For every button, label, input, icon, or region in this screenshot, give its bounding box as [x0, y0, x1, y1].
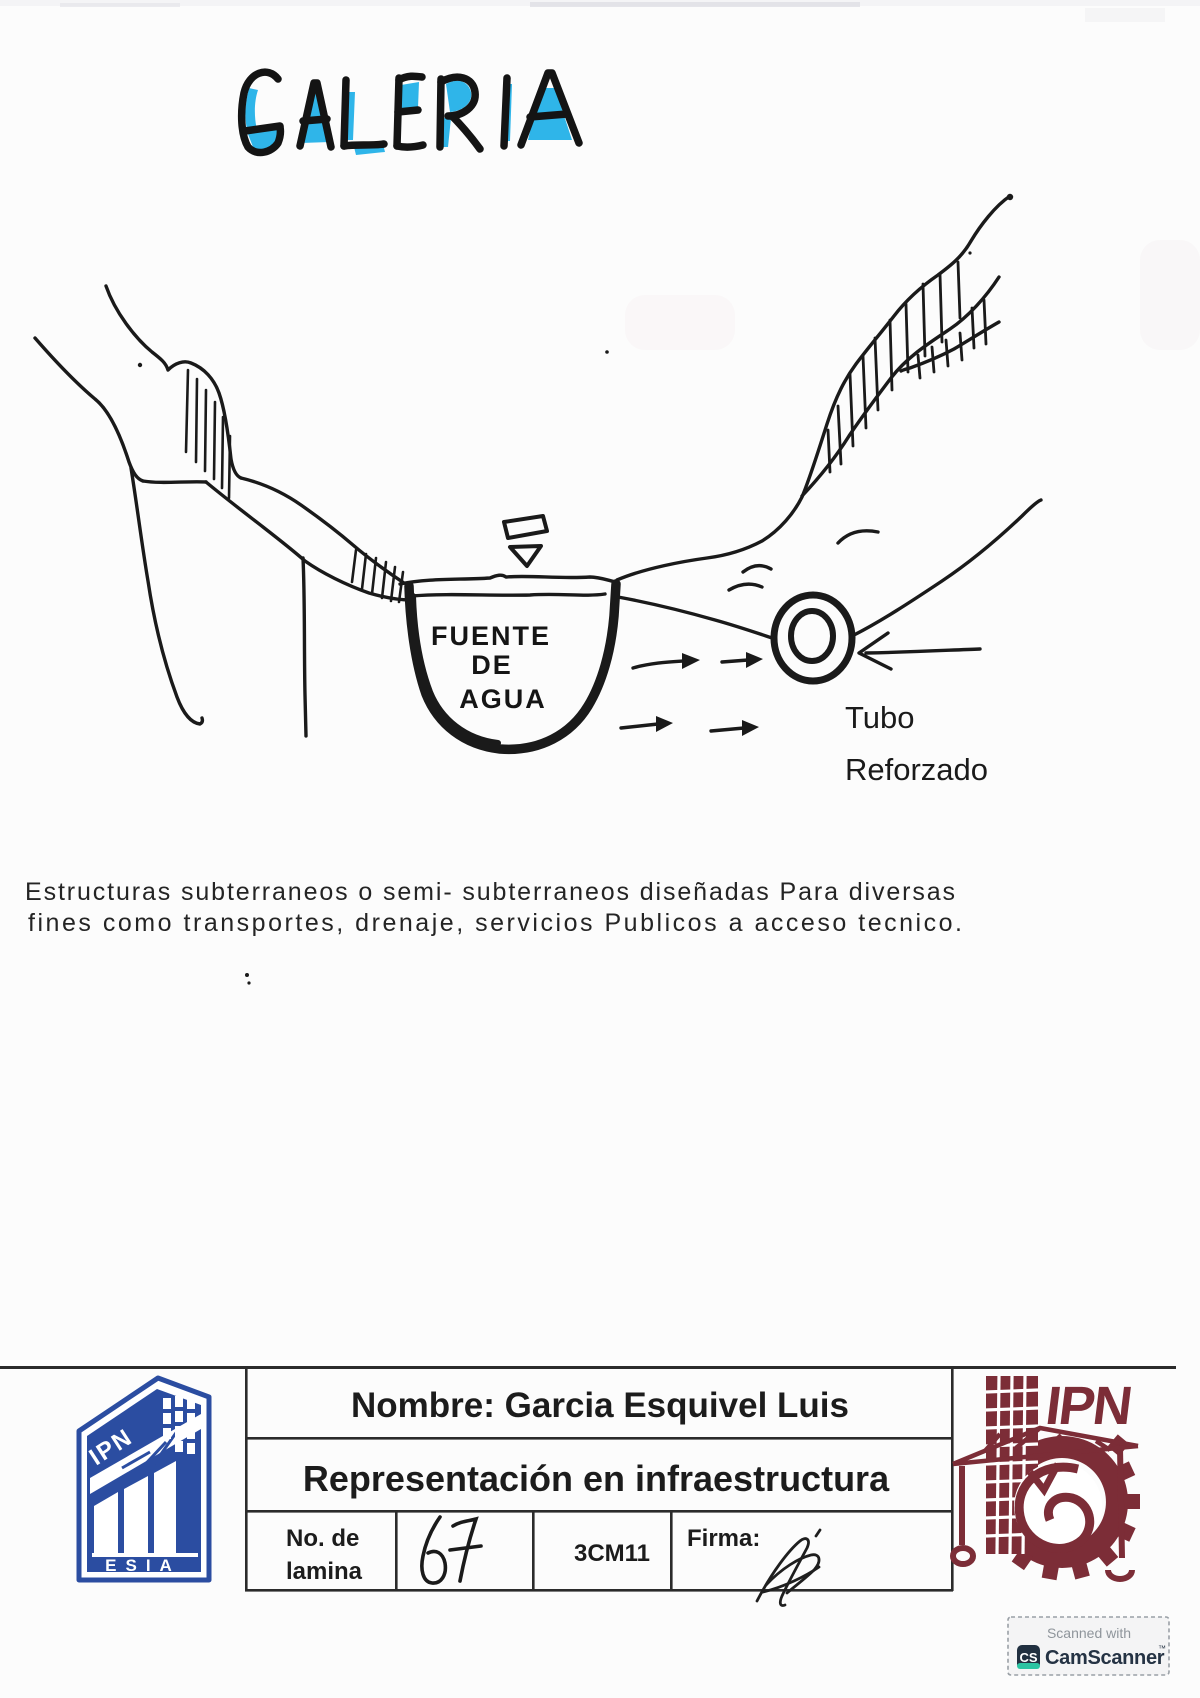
svg-text:fines como transportes, drenaj: fines como transportes, drenaje, servici…	[28, 909, 962, 937]
svg-text:FUENTE: FUENTE	[431, 621, 551, 651]
svg-text:DE: DE	[471, 650, 513, 680]
svg-text:IPN: IPN	[1043, 1376, 1134, 1436]
svg-text:Nombre: Garcia Esquivel Luis: Nombre: Garcia Esquivel Luis	[351, 1386, 849, 1425]
svg-text:Reforzado: Reforzado	[845, 752, 988, 787]
svg-text:AGUA: AGUA	[459, 684, 547, 714]
svg-text:Estructuras subterraneos o sem: Estructuras subterraneos o semi- subterr…	[25, 878, 955, 906]
svg-text:Scanned with: Scanned with	[1047, 1625, 1131, 1641]
svg-text:No. de: No. de	[286, 1525, 359, 1552]
svg-text:lamina: lamina	[286, 1558, 363, 1585]
svg-text:Tubo: Tubo	[845, 700, 915, 735]
svg-text:ESIA: ESIA	[105, 1556, 181, 1575]
svg-text:Representación en infraestruct: Representación en infraestructura	[303, 1458, 890, 1499]
svg-text:CamScanner: CamScanner	[1045, 1647, 1165, 1669]
svg-text:CS: CS	[1019, 1650, 1037, 1665]
svg-text:™: ™	[1158, 1644, 1166, 1653]
svg-text:Firma:: Firma:	[687, 1525, 760, 1552]
svg-text:3CM11: 3CM11	[574, 1540, 650, 1567]
